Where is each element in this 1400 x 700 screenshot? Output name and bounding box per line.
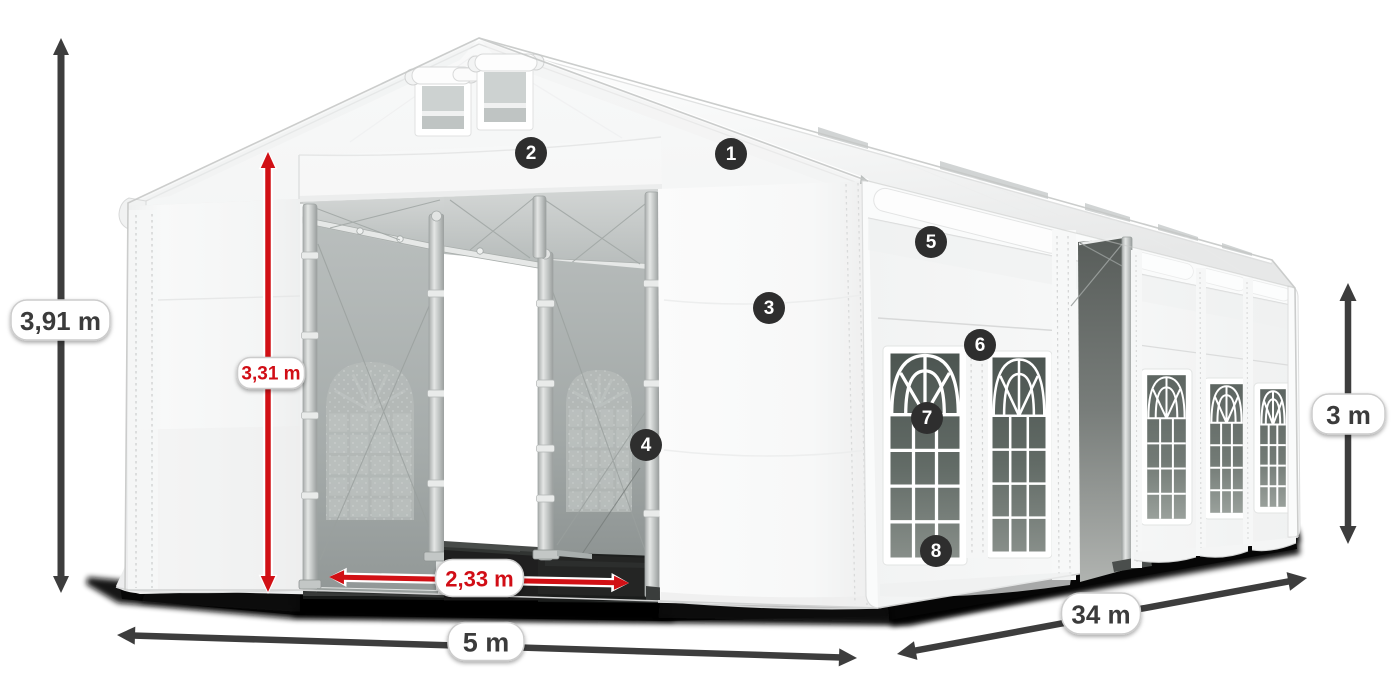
- svg-text:2: 2: [526, 143, 537, 164]
- svg-text:8: 8: [931, 541, 942, 562]
- svg-text:3,31 m: 3,31 m: [241, 364, 300, 385]
- svg-text:3 m: 3 m: [1326, 400, 1371, 430]
- svg-text:5 m: 5 m: [463, 628, 510, 658]
- svg-text:4: 4: [641, 435, 652, 456]
- svg-text:3: 3: [764, 298, 775, 319]
- svg-text:5: 5: [926, 232, 937, 253]
- svg-text:6: 6: [975, 335, 986, 356]
- svg-text:34 m: 34 m: [1071, 600, 1130, 630]
- svg-text:1: 1: [726, 144, 737, 165]
- svg-text:3,91 m: 3,91 m: [20, 306, 101, 336]
- svg-text:7: 7: [922, 408, 933, 429]
- svg-text:2,33 m: 2,33 m: [445, 567, 514, 592]
